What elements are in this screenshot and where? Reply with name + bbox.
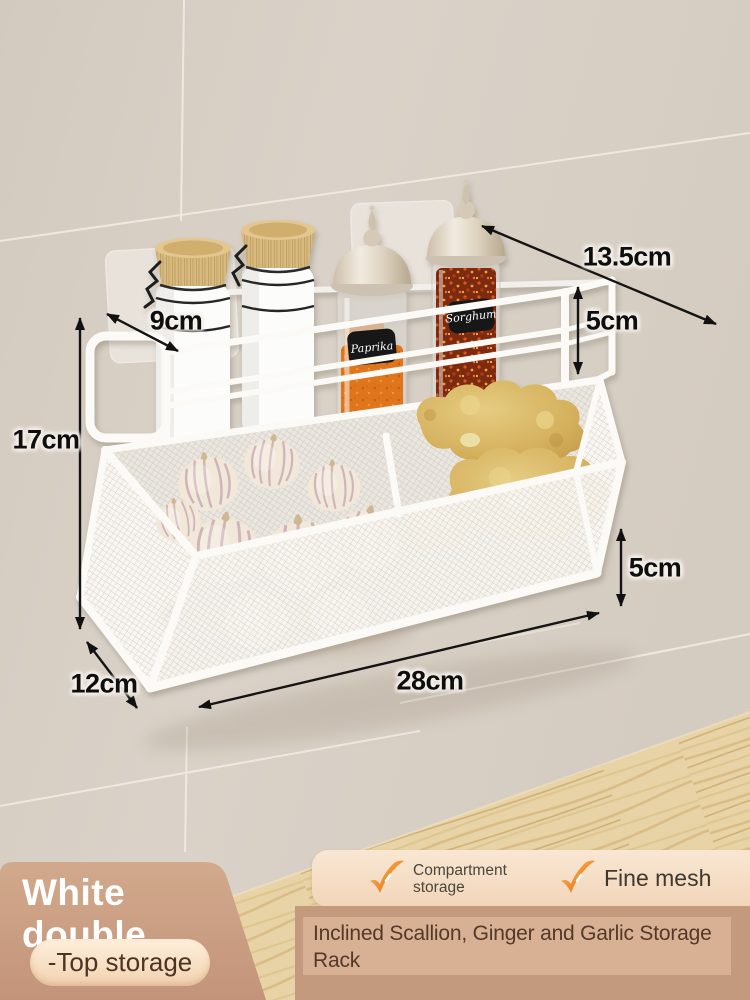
dim-label-lip: 5cm (629, 553, 682, 584)
feature-item: Fine mesh (557, 859, 711, 899)
dim-label-top-depth: 13.5cm (583, 242, 672, 273)
check-icon (366, 859, 406, 899)
product-title: Inclined Scallion, Ginger and Garlic Sto… (303, 917, 731, 975)
variant-tag-label: -Top storage (48, 947, 193, 978)
feature-label: Fine mesh (604, 865, 711, 892)
product-image: Paprika Sorghum (0, 0, 750, 1000)
dim-label-top-rail: 5cm (586, 306, 639, 337)
feature-card: Compartment storage Fine mesh (312, 850, 750, 907)
dim-label-width: 28cm (396, 666, 463, 697)
title-strip: Inclined Scallion, Ginger and Garlic Sto… (295, 906, 750, 1000)
dim-label-height: 17cm (12, 425, 79, 456)
variant-tag-pill: -Top storage (30, 939, 210, 986)
ceramic-spice-jar (233, 220, 315, 434)
dim-label-base-depth: 12cm (70, 669, 137, 700)
feature-label: Compartment storage (413, 862, 523, 896)
dim-label-shelf-depth: 9cm (150, 306, 203, 337)
feature-item: Compartment storage (366, 859, 523, 899)
check-icon (557, 859, 597, 899)
